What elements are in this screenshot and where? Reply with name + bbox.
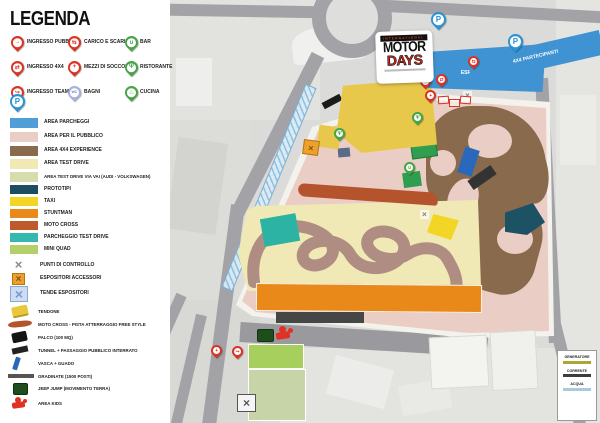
logo-rule	[384, 68, 425, 71]
legend-pin-label: RISTORANTE	[140, 65, 172, 71]
food-zone	[402, 171, 422, 188]
jeep-jump	[257, 329, 274, 342]
tende-espositori-marker: ×	[237, 394, 256, 412]
tendone-icon	[11, 304, 29, 318]
utility-row: ACQUA	[558, 382, 596, 391]
parking-icon: P	[12, 96, 23, 107]
area-swatch-test-drive-via	[10, 172, 38, 182]
fork-knife-icon: Ψ	[336, 130, 343, 137]
legend-pin-label: BAR	[140, 40, 151, 46]
medical-cross-icon: +	[70, 63, 79, 72]
building-footprint	[560, 95, 596, 165]
utility-row: GENERATORE	[558, 355, 596, 364]
zone-stuntman	[256, 283, 482, 313]
zone-swatch-taxi	[10, 197, 38, 206]
building-footprint	[429, 335, 490, 390]
symbol-label: PUNTI DI CONTROLLO	[40, 263, 94, 269]
shape-label: TENDONE	[38, 309, 59, 314]
water-line-swatch	[563, 388, 591, 391]
utilities-card: GENERATORE CORRENTE ACQUA	[557, 350, 597, 421]
door-arrow-icon: ↪	[234, 348, 241, 355]
utility-label: CORRENTE	[558, 369, 596, 374]
generator-line-swatch	[563, 361, 591, 364]
medical-cross-icon: +	[427, 92, 434, 99]
zone-label: MINI QUAD	[44, 247, 71, 253]
legend-pin-ingresso-pubblico: →	[8, 33, 26, 51]
zone-swatch-prototipi	[10, 185, 38, 194]
legend-pin-carico-scarico: ⇆	[65, 33, 83, 51]
vasca-icon	[12, 357, 21, 371]
logo-main-text: MOTOR	[375, 39, 432, 56]
area-swatch-4x4	[10, 146, 38, 156]
walking-icon: →	[13, 38, 22, 47]
stage-palco	[322, 94, 343, 110]
grandstand	[276, 312, 364, 323]
truck-icon: ⇆	[470, 58, 477, 65]
area-label: AREA 4X4 EXPERIENCE	[44, 148, 102, 154]
area-label: AREA TEST DRIVE VIA VAI (AUDI - VOLKSWAG…	[44, 174, 150, 179]
zone-test-drive-via	[248, 369, 306, 421]
freestyle-ramp-icon	[8, 320, 32, 328]
parking-icon: P	[510, 36, 521, 47]
legend-title: LEGENDA	[10, 8, 90, 31]
zone-swatch-mini-quad	[10, 245, 38, 254]
utility-label: GENERATORE	[558, 355, 596, 360]
gray-x-icon: ×	[12, 258, 25, 271]
legend-pin-bar: ∪	[122, 33, 140, 51]
jeep-jump-icon	[13, 383, 28, 395]
legend-pin-cucina: ♨	[122, 83, 140, 101]
car-icon: ⇄	[13, 63, 22, 72]
area-label: AREA PER IL PUBBLICO	[44, 134, 103, 140]
legend-pin-mezzi-soccorso: +	[65, 58, 83, 76]
shape-label: PALCO (100 MQ)	[38, 335, 73, 340]
power-line-swatch	[563, 374, 591, 377]
shape-label: AREA KIDS	[38, 401, 62, 406]
legend-pin-ingresso-4x4: ⇄	[8, 58, 26, 76]
zone-mini-quad	[248, 344, 304, 369]
cup-icon: ∪	[406, 164, 413, 171]
building-footprint	[489, 330, 538, 391]
control-point-marker: ×	[420, 210, 429, 219]
zone-swatch-stuntman	[10, 209, 38, 218]
building-footprint	[176, 58, 212, 106]
legend-pin-bagni: WC	[65, 83, 83, 101]
zone-swatch-parcheggio-td	[10, 233, 38, 242]
truck-icon: ⇆	[70, 38, 79, 47]
car-icon: ⇄	[438, 76, 445, 83]
zone-label: PROTOTIPI	[44, 187, 71, 193]
shape-label: MOTO CROSS - PISTA ATTERRAGGIO FREE STYL…	[38, 322, 146, 327]
barrier-icon	[438, 96, 450, 105]
zone-label: TAXI	[44, 199, 55, 205]
palco-icon	[11, 331, 28, 344]
service-structure	[338, 147, 351, 157]
orange-x-box-icon: ×	[12, 273, 25, 285]
area-kids-icon	[12, 397, 30, 411]
shape-label: VASCA + GUADO	[38, 361, 74, 366]
zone-label: MOTO CROSS	[44, 223, 78, 229]
legend-pin-label: INGRESSO TEAM	[27, 90, 69, 96]
symbol-label: TENDE ESPOSITORI	[40, 291, 89, 297]
event-logo: INTERNATIONAL MOTOR DAYS	[375, 30, 434, 84]
espositori-accessori-marker: ×	[302, 139, 320, 156]
kitchen-icon: ♨	[127, 88, 136, 97]
legend-panel: LEGENDA → INGRESSO PUBBLICO ⇄ INGRESSO 4…	[0, 0, 170, 423]
shape-label: GRADINATE (1500 POSTI)	[38, 374, 92, 379]
utility-label: ACQUA	[558, 382, 596, 387]
event-map-poster: ESPOSITORI E STAFF 4X4 PARTECIPANTI × × …	[0, 0, 600, 423]
cup-icon: ∪	[127, 38, 136, 47]
shape-label: TUNNEL + PASSAGGIO PUBBLICO INTERRATO	[38, 348, 138, 353]
parking-icon: P	[433, 14, 444, 25]
fork-knife-icon: Ψ	[414, 114, 421, 121]
zone-label: STUNTMAN	[44, 211, 72, 217]
legend-pin-label: BAGNI	[84, 90, 100, 96]
gradinate-icon	[8, 374, 34, 378]
area-label: AREA PARCHEGGI	[44, 120, 89, 126]
blue-x-box-icon: ×	[10, 286, 28, 302]
legend-pin-label: INGRESSO 4X4	[27, 65, 64, 71]
area-swatch-pubblico	[10, 132, 38, 142]
zone-label: PARCHEGGIO TEST DRIVE	[44, 235, 109, 241]
area-swatch-parcheggi	[10, 118, 38, 128]
barrier-icon	[449, 99, 460, 107]
medical-cross-icon: +	[213, 347, 220, 354]
area-swatch-test-drive	[10, 159, 38, 169]
barrier-icon	[460, 96, 472, 105]
area-kids-icon	[276, 326, 296, 342]
fork-knife-icon: Ψ	[127, 63, 136, 72]
legend-pin-label: CUCINA	[140, 90, 159, 96]
shape-label: JEEP JUMP (MOVIMENTO TERRA)	[38, 386, 110, 391]
symbol-label: ESPOSITORI ACCESSORI	[40, 276, 101, 282]
wc-icon: WC	[70, 88, 79, 97]
utility-row: CORRENTE	[558, 369, 596, 378]
tunnel-icon	[12, 345, 29, 354]
area-label: AREA TEST DRIVE	[44, 161, 89, 167]
zone-swatch-moto-cross	[10, 221, 38, 230]
legend-pin-ristorante: Ψ	[122, 58, 140, 76]
